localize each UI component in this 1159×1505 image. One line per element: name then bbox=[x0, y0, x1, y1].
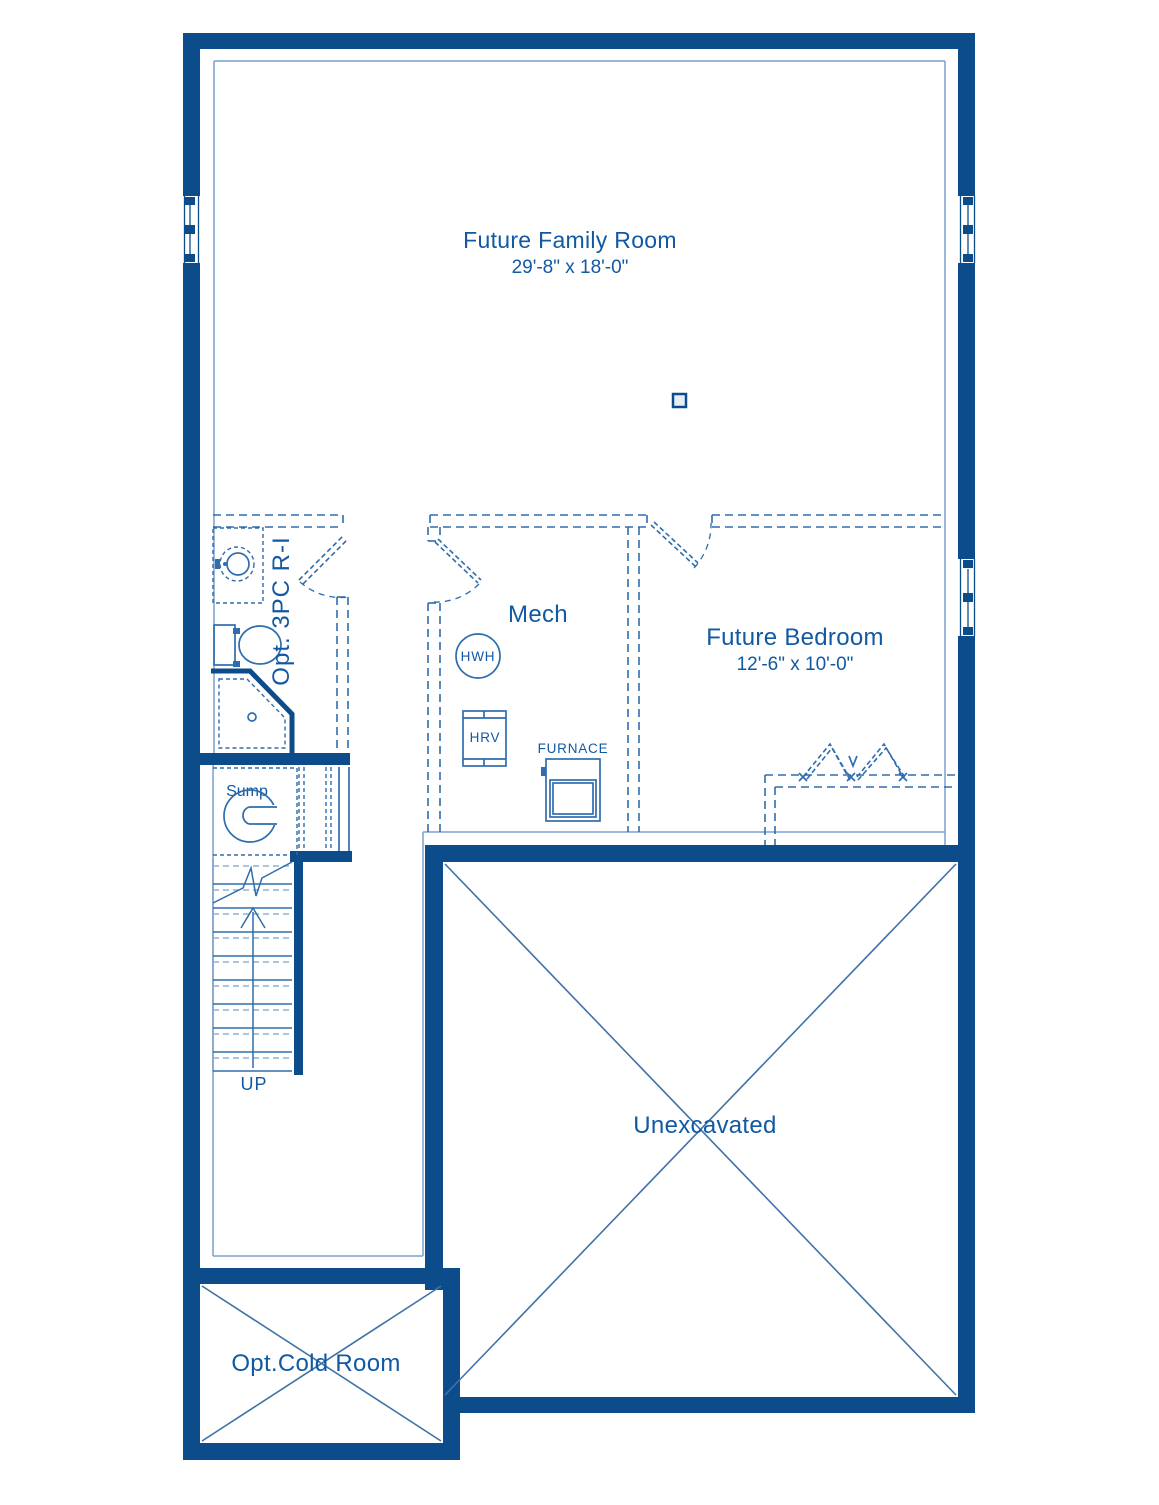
bedroom-dims: 12'-6" x 10'-0" bbox=[737, 654, 854, 675]
stairs-up-label: UP bbox=[240, 1074, 267, 1094]
mech-label: Mech bbox=[508, 601, 568, 628]
window-stop bbox=[963, 627, 973, 635]
bath-door-leaf bbox=[303, 540, 347, 584]
toilet-tank bbox=[214, 625, 235, 665]
window-stop bbox=[963, 197, 973, 205]
structural-post bbox=[673, 394, 686, 407]
window-stop bbox=[185, 197, 195, 205]
area-unexcavated: Unexcavated bbox=[445, 864, 956, 1395]
hrv-label: HRV bbox=[470, 730, 501, 745]
unexcavated-label: Unexcavated bbox=[633, 1112, 776, 1139]
wall-bath-bottom bbox=[200, 753, 350, 765]
window-left bbox=[181, 196, 202, 263]
room-future-family: Future Family Room 29'-8" x 18'-0" bbox=[463, 227, 686, 407]
wall-unexcavated-bottom bbox=[443, 1397, 975, 1413]
shower-drain bbox=[248, 713, 256, 721]
toilet-hinge bbox=[233, 661, 240, 667]
bath-label: Opt. 3PC R-I bbox=[268, 536, 295, 685]
wall-top bbox=[183, 33, 975, 49]
floor-plan-canvas: Future Family Room 29'-8" x 18'-0" Opt. … bbox=[0, 0, 1159, 1500]
furnace-tab bbox=[541, 767, 546, 776]
window-stop bbox=[963, 254, 973, 262]
plumbing-chase bbox=[299, 767, 349, 851]
mech-door-swing bbox=[433, 584, 479, 602]
family-room-dims: 29'-8" x 18'-0" bbox=[512, 257, 629, 278]
window-right-bedroom bbox=[957, 559, 978, 636]
sump-notch bbox=[249, 805, 279, 825]
bath-door-swing bbox=[300, 582, 349, 598]
wall-unexcavated-left bbox=[425, 845, 443, 1290]
area-cold-room: Opt.Cold Room bbox=[202, 1286, 441, 1441]
family-room-label: Future Family Room bbox=[463, 227, 677, 253]
mech-door-leaf bbox=[435, 542, 478, 583]
toilet-hinge bbox=[233, 628, 240, 634]
bath-door-leaf bbox=[299, 536, 343, 580]
window-stop bbox=[963, 225, 973, 234]
room-bathroom: Opt. 3PC R-I bbox=[211, 515, 349, 755]
furnace-detail bbox=[553, 783, 593, 814]
closet-bifold-mark bbox=[849, 756, 857, 766]
furnace-label: FURNACE bbox=[538, 741, 609, 756]
room-mech: Mech HWH HRV FURNACE bbox=[428, 515, 647, 837]
wall-stair-right bbox=[294, 862, 303, 1075]
window-stop bbox=[185, 254, 195, 262]
wall-coldroom-right bbox=[443, 1268, 460, 1460]
stair-break-line bbox=[213, 862, 292, 903]
mech-door-leaf bbox=[438, 539, 481, 580]
wall-landing-cap bbox=[290, 851, 352, 862]
sink-bowl bbox=[227, 553, 249, 575]
window-stop bbox=[963, 593, 973, 602]
furnace-unit bbox=[546, 759, 600, 821]
sump-notch-cap bbox=[243, 807, 249, 824]
closet-bifold-door bbox=[803, 744, 849, 777]
room-future-bedroom: Future Bedroom 12'-6" x 10'-0" bbox=[647, 515, 957, 845]
wall-unexcavated-top bbox=[425, 845, 975, 862]
basement-floor-plan: Future Family Room 29'-8" x 18'-0" Opt. … bbox=[0, 0, 1159, 1500]
sump-area: Sump bbox=[213, 768, 297, 855]
bedroom-door-leaf bbox=[654, 522, 698, 563]
wall-coldroom-top bbox=[200, 1268, 458, 1284]
stairs: UP bbox=[213, 858, 292, 1094]
window-stop bbox=[963, 560, 973, 568]
furnace-detail bbox=[550, 780, 596, 817]
bedroom-label: Future Bedroom bbox=[706, 624, 884, 651]
sink-faucet bbox=[215, 559, 220, 569]
bedroom-door-leaf bbox=[651, 525, 695, 566]
wall-coldroom-bottom bbox=[183, 1443, 460, 1460]
coldroom-label: Opt.Cold Room bbox=[231, 1350, 400, 1377]
window-right-top bbox=[957, 196, 978, 263]
sink-faucet-dot bbox=[223, 562, 227, 566]
hwh-label: HWH bbox=[461, 649, 496, 664]
closet-bifold-pivot bbox=[799, 773, 807, 781]
window-stop bbox=[185, 225, 195, 234]
